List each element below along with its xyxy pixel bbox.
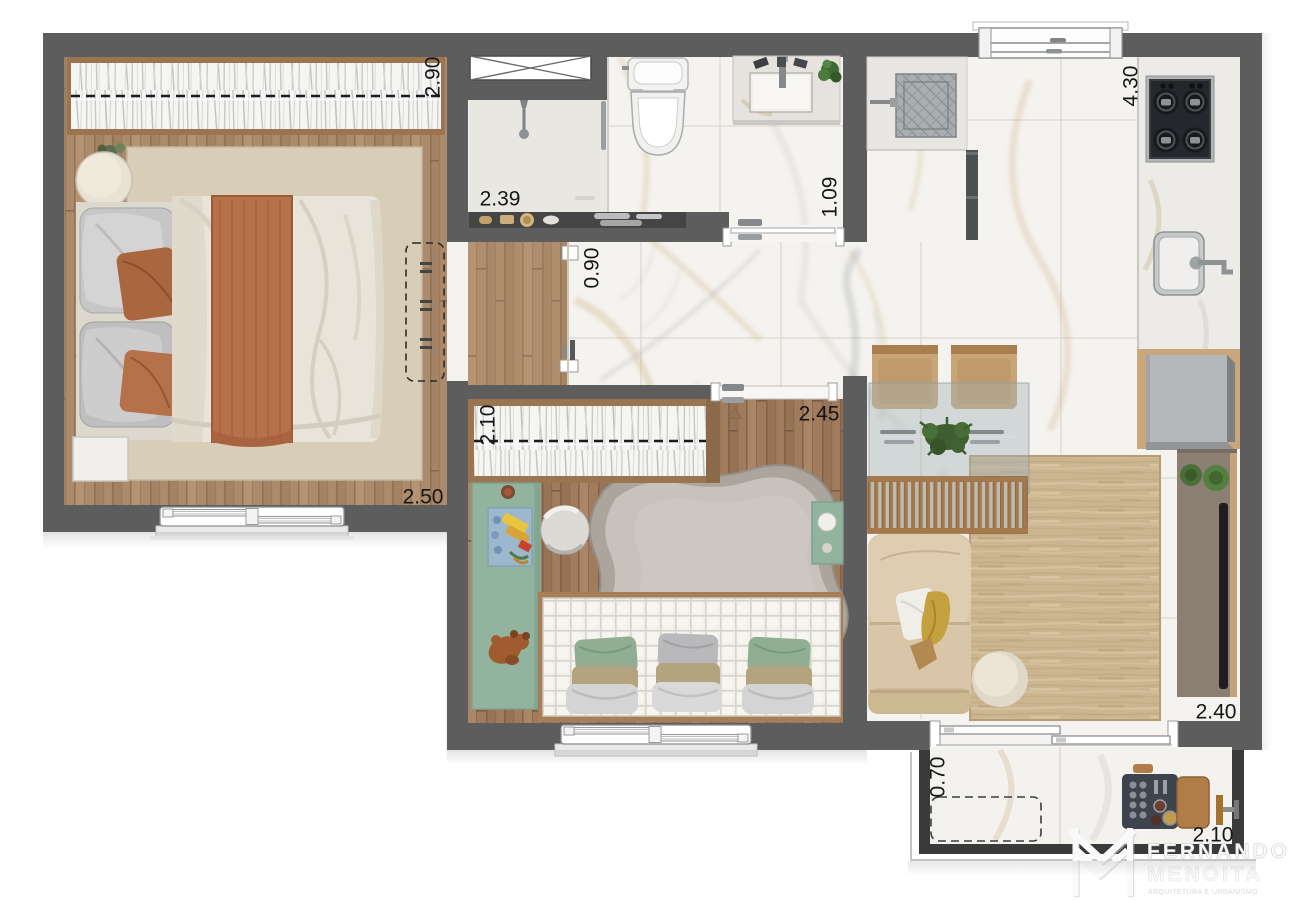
svg-text:2.90: 2.90 [422, 57, 445, 98]
svg-text:2.39: 2.39 [480, 188, 521, 211]
svg-text:2.45: 2.45 [799, 403, 840, 426]
svg-text:2.40: 2.40 [1196, 701, 1237, 724]
svg-text:2.50: 2.50 [403, 486, 444, 509]
svg-text:0.70: 0.70 [927, 757, 950, 798]
svg-text:1.09: 1.09 [819, 177, 842, 218]
svg-text:0.90: 0.90 [581, 248, 604, 289]
svg-text:2.10: 2.10 [477, 405, 500, 446]
svg-text:ARQUITETURA E URBANISMO: ARQUITETURA E URBANISMO [1148, 889, 1258, 896]
svg-text:2.10: 2.10 [1193, 824, 1234, 847]
svg-text:4.30: 4.30 [1120, 66, 1143, 107]
